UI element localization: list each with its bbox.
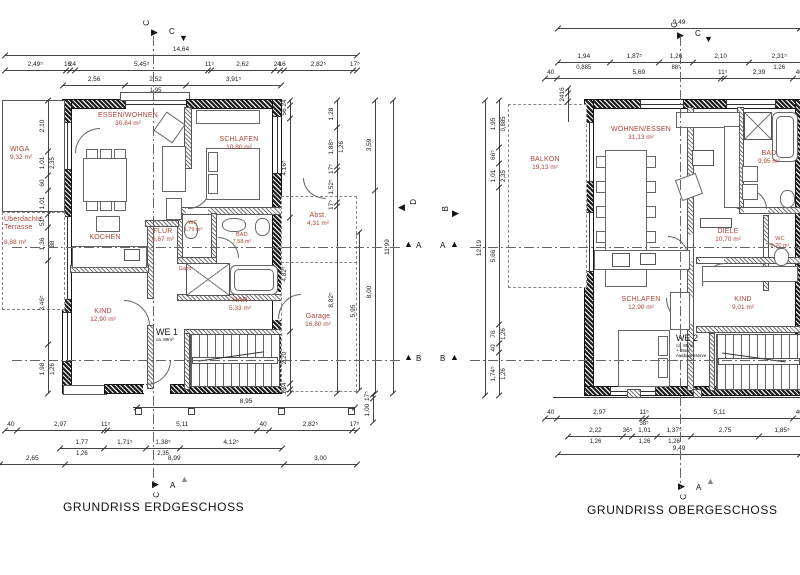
section-reference-lines: ◀ D B ▶ ▲ A A ▲ ▲ B B ▲: [0, 0, 800, 575]
section-arrow-up-icon: ▲: [450, 240, 459, 249]
section-arrow-left-icon: ◀: [398, 203, 405, 212]
section-line-a-og: [470, 247, 800, 248]
section-letter-a: A: [416, 242, 421, 250]
section-letter-a: A: [440, 242, 445, 250]
section-line-a-eg: [12, 247, 400, 248]
floor-plan-sheet: WIGA 9,32 m² Überdachte Terrasse 8,88 m²…: [0, 0, 800, 575]
section-line-c-eg: [153, 36, 154, 488]
section-arrow-up-icon: ▲: [404, 353, 413, 362]
section-arrow-right-icon: ▶: [452, 209, 459, 218]
section-arrow-up-icon: ▲: [450, 353, 459, 362]
section-letter-d: D: [410, 199, 418, 205]
section-letter-b: B: [440, 355, 445, 363]
section-line-b-og: [470, 360, 800, 361]
section-arrow-up-icon: ▲: [404, 240, 413, 249]
section-line-c-og: [680, 36, 681, 488]
section-letter-b: B: [442, 206, 450, 211]
section-line-b-eg: [12, 360, 400, 361]
section-letter-b: B: [416, 355, 421, 363]
